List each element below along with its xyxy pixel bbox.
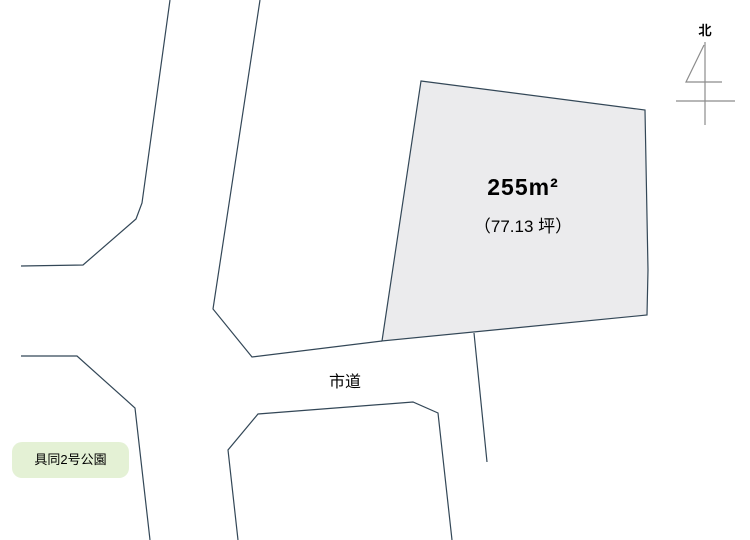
plot-shape	[382, 81, 648, 341]
parcel-boundary-line	[474, 333, 487, 462]
road-edge-south	[228, 402, 452, 540]
north-arrow	[676, 42, 735, 125]
road-label: 市道	[300, 368, 390, 392]
north-label: 北	[675, 20, 735, 39]
north-arrow-flag	[686, 45, 722, 82]
road-edge-north-to-east	[213, 0, 382, 357]
park-label: 具同2号公園	[12, 442, 129, 478]
plot-area-label: 255m²	[423, 174, 623, 201]
land-plot-map: 北 255m² （77.13 坪） 市道 具同2号公園	[0, 0, 750, 540]
plot-tsubo-label: （77.13 坪）	[423, 212, 623, 237]
road-edge-north-to-west	[21, 0, 170, 266]
